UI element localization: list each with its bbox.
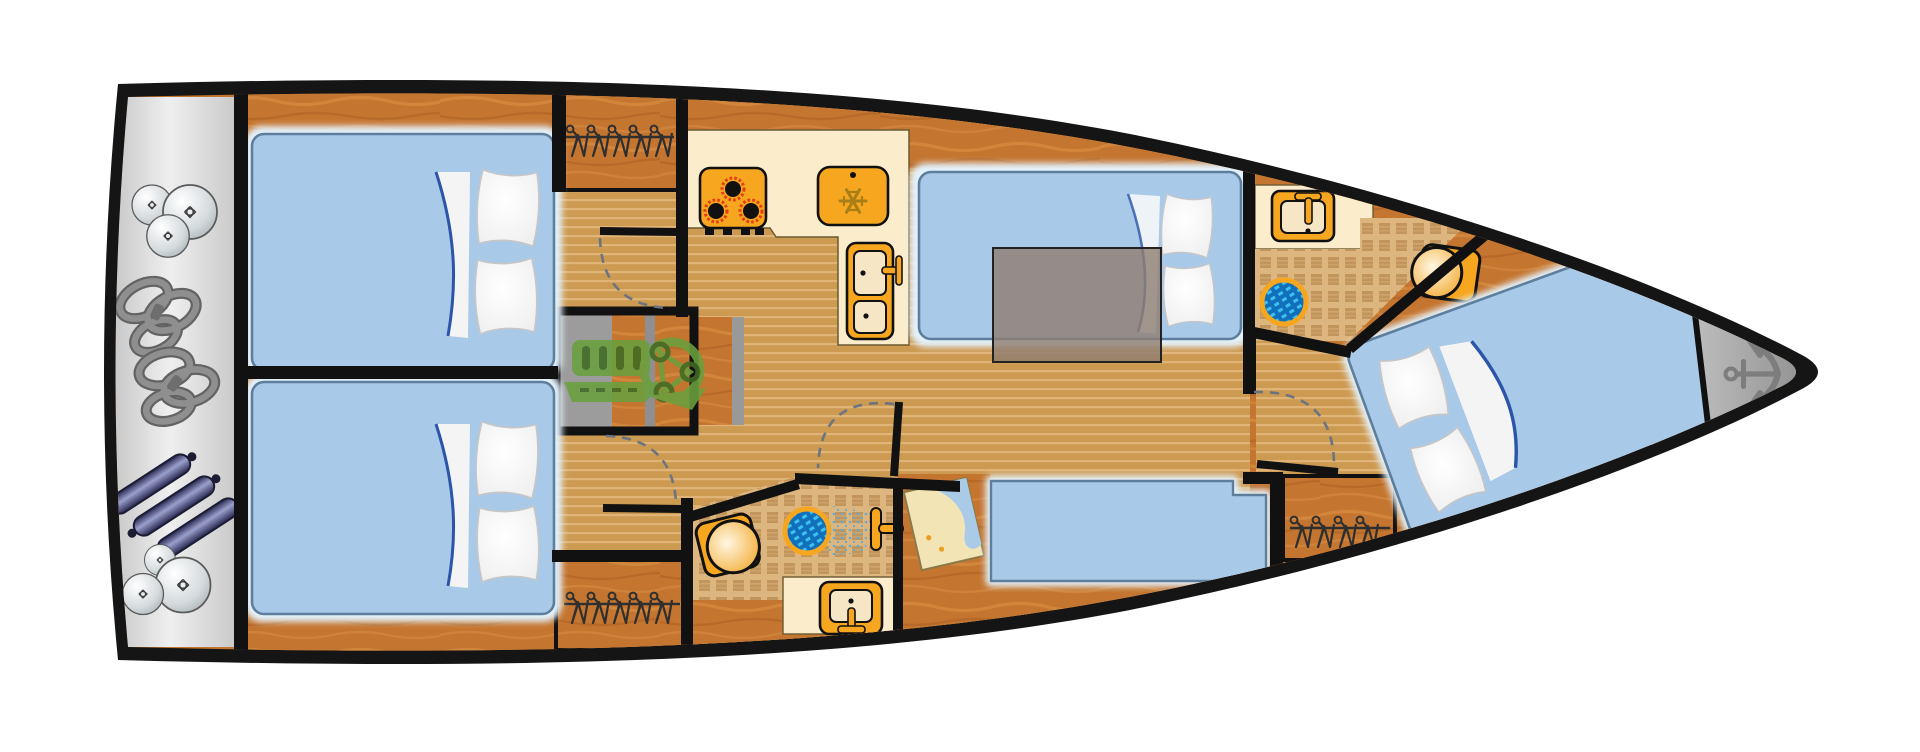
forward-head-sink-icon (1272, 191, 1334, 241)
wall (893, 479, 903, 655)
pillow-icon (474, 258, 538, 334)
galley-sink-icon (847, 243, 902, 339)
aft-head-sink-icon (820, 582, 882, 634)
wall (676, 86, 688, 317)
pillow-icon (475, 169, 540, 246)
pillow-icon (476, 506, 540, 582)
shower-drain-icon (1262, 280, 1306, 324)
shower-drain-icon (785, 509, 829, 553)
aft-cabins-divider (248, 366, 558, 379)
wall (1243, 154, 1255, 334)
door-leaf (603, 508, 682, 509)
fridge-icon (818, 167, 888, 225)
fender-ball-icon (147, 215, 190, 258)
pillow-icon (1162, 263, 1216, 326)
aft-cabin-starboard-berth (244, 374, 562, 622)
wall (552, 86, 566, 192)
stove-icon (700, 168, 766, 235)
hanging-locker-aft-starboard (556, 558, 686, 650)
hanging-locker-aft-port (556, 93, 680, 190)
fender-ball-icon (156, 558, 211, 613)
door-leaf (894, 402, 899, 476)
pillow-icon (1160, 194, 1215, 258)
stern-bulkhead (234, 86, 248, 658)
yacht-floor-plan (0, 0, 1920, 752)
saloon-table (993, 248, 1161, 362)
pillow-icon (474, 421, 539, 498)
bench-settee (991, 481, 1266, 581)
wall (1243, 330, 1256, 394)
aft-cabin-port-berth (244, 126, 562, 378)
door-leaf (600, 231, 678, 232)
wall (552, 550, 690, 562)
floor-plan-page (0, 0, 1920, 752)
fender-ball-icon (123, 574, 164, 615)
